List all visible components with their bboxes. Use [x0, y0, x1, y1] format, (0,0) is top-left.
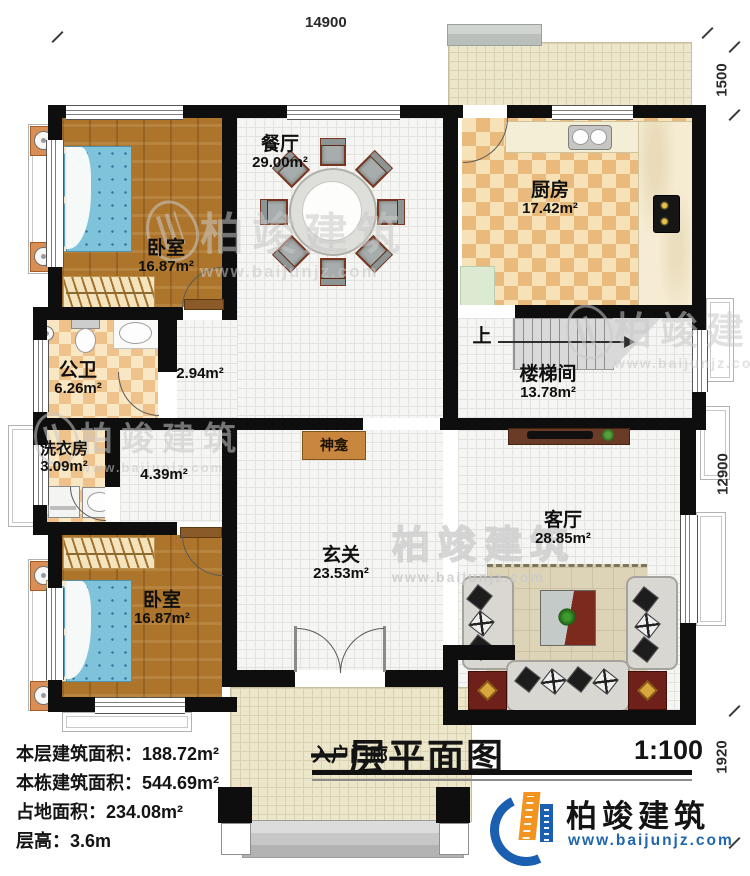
wall-foyer-bottom-left: [237, 670, 295, 687]
info-line-height: 层高：3.6m: [16, 827, 219, 856]
label-kitchen: 厨房 17.42m²: [505, 180, 595, 218]
porch-column-left: [218, 787, 252, 823]
floorplan-page: { "title": {"main": "一层平面图", "scale": "1…: [0, 0, 750, 865]
door-gap-laundry: [105, 487, 120, 522]
title-underline-thin: [312, 779, 692, 781]
wall-living-bottom: [443, 710, 696, 725]
opening-foyer-stairwell: [363, 418, 440, 430]
opening-kitchen-stairwell: [458, 305, 515, 318]
shrine-label: 神龛: [320, 437, 348, 453]
dimension-tick: [728, 41, 740, 53]
wall-kitchen-left: [443, 105, 458, 430]
label-bedroom2: 卧室 16.87m²: [122, 590, 202, 628]
dimension-right-middle: 12900: [715, 453, 732, 495]
dimension-right-top: 1500: [714, 63, 731, 96]
window-living-right: [680, 515, 698, 623]
info-block: 本层建筑面积：188.72m² 本栋建筑面积：544.69m² 占地面积：234…: [16, 740, 219, 856]
window-bedroom2-bottom: [95, 697, 185, 714]
window-kitchen-top: [552, 105, 633, 120]
window-bedroom1-top: [66, 105, 183, 120]
label-hall-b: 4.39m²: [132, 467, 196, 484]
terrace-floor: [448, 42, 692, 114]
kitchen-mat: [460, 266, 495, 308]
side-table-right: [628, 671, 667, 710]
label-stairs-up: 上: [470, 326, 494, 347]
watermark: 柏竣建筑 www.baijunjz.com: [200, 198, 408, 282]
watermark: 柏竣建筑 www.baijunjz.com: [614, 300, 750, 371]
label-laundry: 洗衣房 3.09m²: [28, 441, 100, 476]
info-line-building-area: 本栋建筑面积：544.69m²: [16, 769, 219, 798]
window-sill-bottom: [62, 712, 192, 732]
label-living: 客厅 28.85m²: [528, 510, 598, 548]
label-dining: 餐厅 29.00m²: [232, 134, 328, 172]
watermark-url: www.baijunjz.com: [392, 569, 576, 585]
label-foyer: 玄关 23.53m²: [306, 545, 376, 583]
dimension-tick: [728, 109, 740, 121]
window-bedroom2-left: [46, 588, 64, 680]
label-bathroom: 公卫 6.26m²: [46, 360, 110, 398]
side-table-left: [468, 671, 507, 710]
wall-bathroom-right: [158, 320, 177, 372]
title-underline-thick: [312, 770, 692, 775]
watermark-text: 柏竣建筑: [200, 198, 408, 262]
porch-column-right: [436, 787, 470, 823]
porch-pedestal-left: [221, 823, 251, 855]
stove-burner-2: [660, 217, 669, 226]
watermark-url: www.baijunjz.com: [614, 355, 750, 371]
toilet-bowl: [75, 328, 96, 353]
bedroom1-wardrobe: [63, 276, 155, 308]
dimension-tick: [728, 705, 740, 717]
logo-url: www.baijunjz.com: [568, 832, 734, 850]
porch-pedestal-right: [439, 823, 469, 855]
wall-living-stub: [443, 645, 515, 660]
logo-name: 柏竣建筑: [566, 791, 710, 836]
porch-steps: [242, 820, 464, 858]
stove-burner-1: [660, 201, 669, 210]
bath-sink: [119, 322, 152, 344]
label-hall-a: 2.94m²: [168, 366, 232, 383]
dimension-right-bottom: 1920: [714, 740, 731, 773]
watermark-text: 柏竣建筑: [80, 412, 244, 460]
terrace-steps: [447, 24, 542, 46]
coffee-table-plant: [558, 608, 576, 626]
wall-foyer-bottom-right: [385, 670, 443, 687]
dimension-tick: [51, 31, 63, 43]
kitchen-sink-basin-2: [590, 129, 607, 145]
label-stairwell: 楼梯间 13.78m²: [498, 364, 598, 402]
window-bedroom1-left: [46, 140, 64, 267]
door-gap-kitchen-terrace: [463, 105, 507, 118]
window-sill-right-living: [696, 512, 726, 626]
tv: [527, 431, 593, 439]
window-dining-top: [287, 105, 400, 120]
watermark-text: 柏竣建筑: [614, 300, 750, 355]
washing-machine-panel: [50, 506, 76, 510]
dimension-tick: [701, 27, 713, 39]
logo-building-blue-icon: [540, 804, 553, 842]
watermark-url: www.baijunjz.com: [200, 262, 408, 282]
kitchen-sink-basin-1: [572, 129, 589, 145]
logo: 柏竣建筑 www.baijunjz.com: [488, 786, 746, 860]
label-bedroom1: 卧室 16.87m²: [126, 238, 206, 276]
wall-shrine: [237, 418, 363, 430]
bedroom2-wardrobe: [63, 537, 155, 569]
tv-plant: [602, 429, 614, 441]
info-line-footprint: 占地面积：234.08m²: [16, 798, 219, 827]
info-line-floor-area: 本层建筑面积：188.72m²: [16, 740, 219, 769]
dimension-top: 14900: [305, 14, 347, 31]
plan-scale: 1:100: [634, 735, 703, 766]
shrine-cabinet: 神龛: [302, 431, 366, 460]
